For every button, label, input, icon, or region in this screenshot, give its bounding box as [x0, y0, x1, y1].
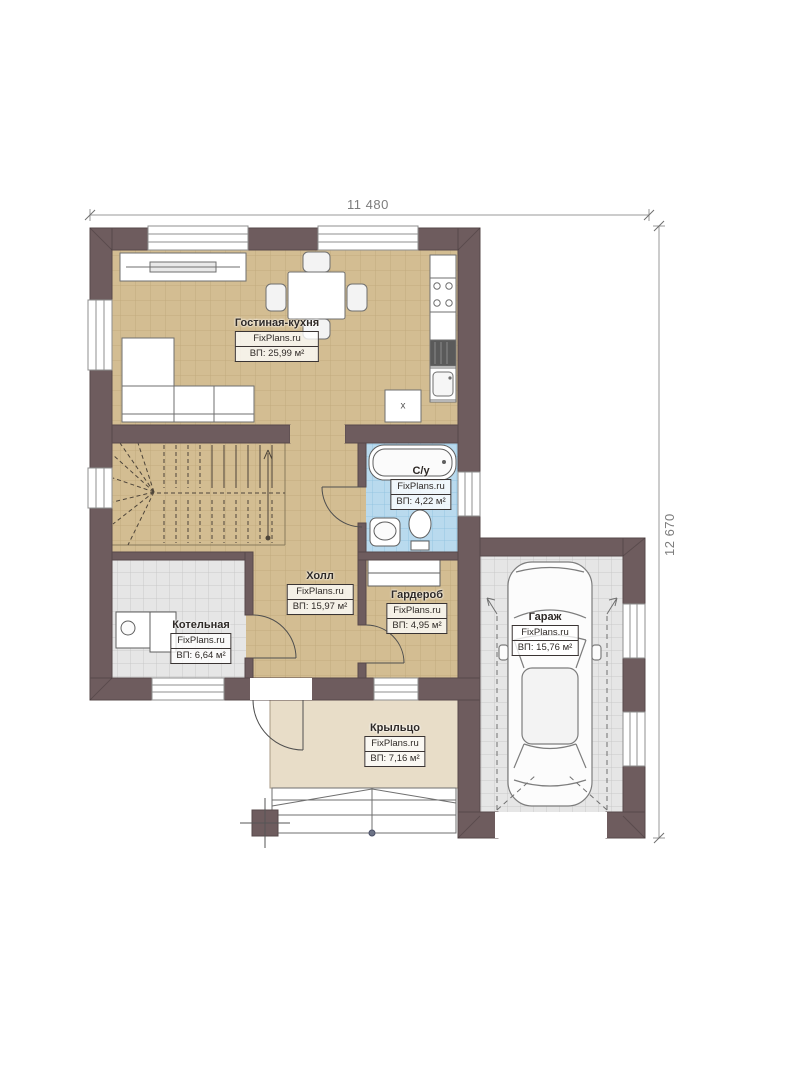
living-hall-opening — [290, 425, 345, 443]
kitchen-appliance-box-label: x — [401, 401, 406, 412]
window — [318, 226, 418, 250]
window — [623, 712, 645, 766]
window — [623, 604, 645, 658]
room-area: ВП: 15,97 м² — [287, 600, 354, 615]
room-name: Гараж — [512, 611, 579, 623]
room-brand: FixPlans.ru — [386, 603, 447, 619]
window — [152, 678, 224, 700]
window — [458, 472, 480, 516]
room-label-porch: Крыльцо FixPlans.ru ВП: 7,16 м² — [364, 722, 425, 767]
window — [88, 468, 112, 508]
room-area: ВП: 4,22 м² — [390, 495, 451, 510]
room-area: ВП: 4,95 м² — [386, 619, 447, 634]
stove — [430, 278, 456, 312]
room-area: ВП: 15,76 м² — [512, 641, 579, 656]
porch-steps — [240, 788, 456, 848]
kitchen-appliance — [430, 340, 456, 366]
car — [499, 562, 601, 806]
room-name: Гардероб — [386, 589, 447, 601]
kitchen-sink — [430, 368, 456, 400]
room-name: Гостиная-кухня — [235, 317, 319, 329]
room-brand: FixPlans.ru — [235, 331, 319, 347]
room-label-living-kitchen: Гостиная-кухня FixPlans.ru ВП: 25,99 м² — [235, 317, 319, 362]
room-brand: FixPlans.ru — [364, 736, 425, 752]
room-name: Котельная — [170, 619, 231, 631]
room-name: С/у — [390, 465, 451, 477]
room-brand: FixPlans.ru — [287, 584, 354, 600]
bathroom-sink — [370, 518, 400, 546]
room-brand: FixPlans.ru — [390, 479, 451, 495]
dimension-width-label: 11 480 — [347, 197, 389, 212]
room-area: ВП: 7,16 м² — [364, 752, 425, 767]
window — [374, 678, 418, 700]
floor-plan-page: 11 480 12 670 Гостиная-кухня FixPlans.ru… — [0, 0, 792, 1080]
washing-machine — [116, 612, 150, 648]
room-label-garage: Гараж FixPlans.ru ВП: 15,76 м² — [512, 611, 579, 656]
window — [88, 300, 112, 370]
window — [148, 226, 248, 250]
toilet — [409, 510, 431, 550]
entrance-opening — [250, 678, 312, 700]
room-name: Холл — [287, 570, 354, 582]
tv-console — [120, 253, 246, 281]
room-area: ВП: 6,64 м² — [170, 649, 231, 664]
room-brand: FixPlans.ru — [512, 625, 579, 641]
dimension-height-label: 12 670 — [662, 513, 677, 556]
room-label-hall: Холл FixPlans.ru ВП: 15,97 м² — [287, 570, 354, 615]
room-area: ВП: 25,99 м² — [235, 347, 319, 362]
garage-door-opening — [495, 812, 607, 838]
room-label-wardrobe: Гардероб FixPlans.ru ВП: 4,95 м² — [386, 589, 447, 634]
room-label-boiler-room: Котельная FixPlans.ru ВП: 6,64 м² — [170, 619, 231, 664]
room-name: Крыльцо — [364, 722, 425, 734]
room-brand: FixPlans.ru — [170, 633, 231, 649]
room-label-bathroom: С/у FixPlans.ru ВП: 4,22 м² — [390, 465, 451, 510]
closet-shelf — [368, 560, 440, 586]
